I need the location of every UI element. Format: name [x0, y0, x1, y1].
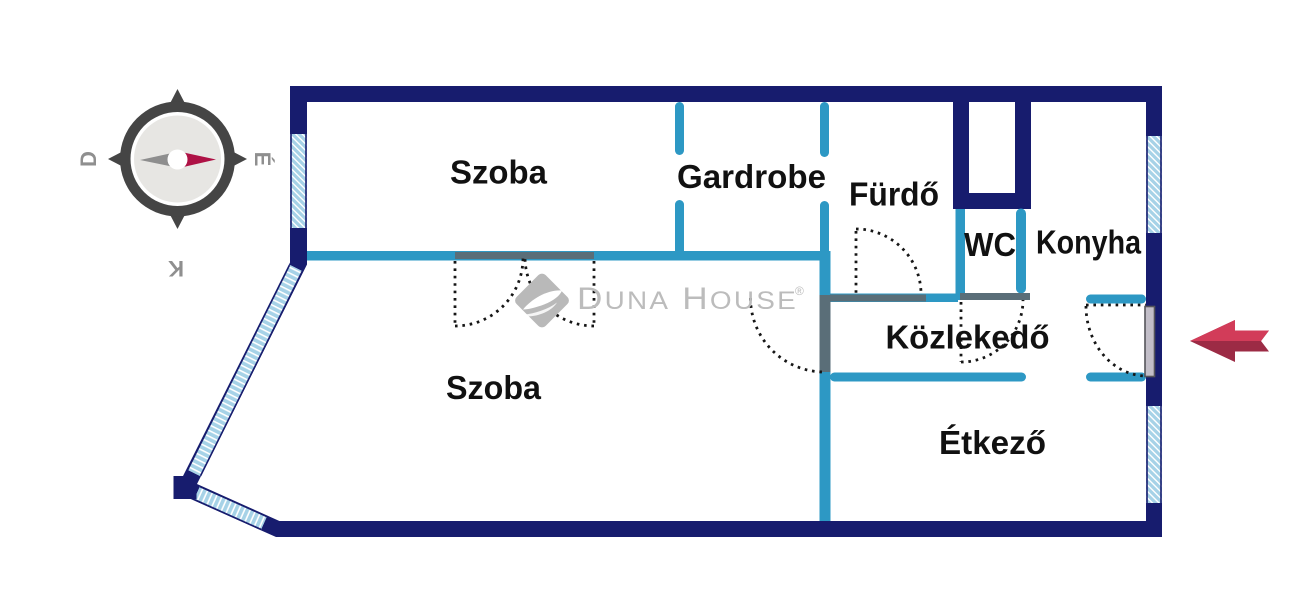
- svg-text:WC: WC: [964, 226, 1016, 263]
- svg-text:Étkező: Étkező: [939, 424, 1046, 461]
- svg-text:®: ®: [795, 284, 804, 298]
- svg-text:É: É: [250, 152, 275, 167]
- svg-text:Gardrobe: Gardrobe: [677, 158, 826, 195]
- svg-text:Szoba: Szoba: [446, 369, 542, 406]
- svg-text:D: D: [76, 151, 101, 167]
- svg-text:K: K: [168, 256, 184, 281]
- svg-text:Közlekedő: Közlekedő: [886, 319, 1050, 356]
- svg-text:DUNA HOUSE: DUNA HOUSE: [577, 280, 798, 316]
- svg-text:Konyha: Konyha: [1036, 224, 1142, 261]
- svg-text:Szoba: Szoba: [450, 154, 548, 191]
- svg-text:Fürdő: Fürdő: [849, 176, 939, 213]
